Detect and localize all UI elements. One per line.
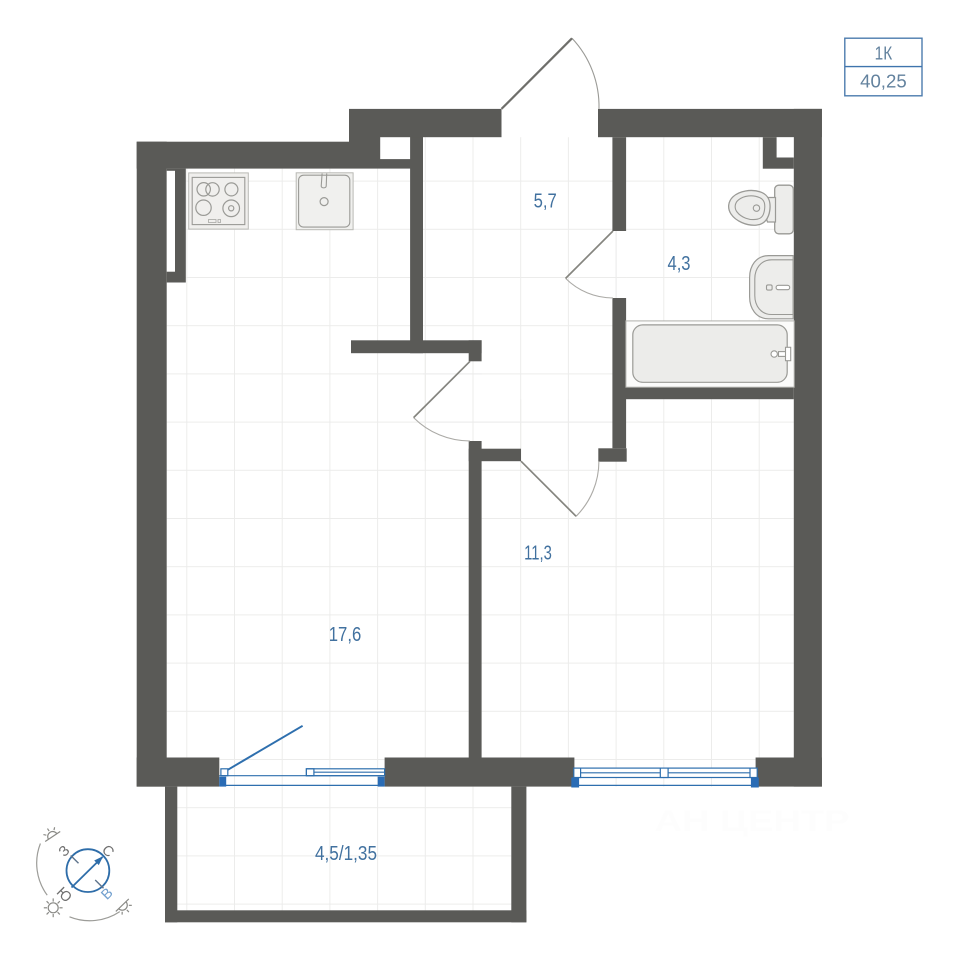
svg-text:4,5/1,35: 4,5/1,35 bbox=[315, 843, 377, 865]
svg-text:АН ЦЕНТР: АН ЦЕНТР bbox=[655, 805, 850, 838]
svg-text:5,7: 5,7 bbox=[534, 190, 557, 212]
svg-text:11,3: 11,3 bbox=[524, 543, 552, 565]
svg-text:4,3: 4,3 bbox=[668, 253, 691, 275]
svg-text:40,25: 40,25 bbox=[860, 72, 907, 92]
svg-text:17,6: 17,6 bbox=[329, 624, 362, 646]
svg-text:Ю: Ю bbox=[53, 884, 75, 906]
svg-text:1К: 1К bbox=[875, 44, 893, 64]
